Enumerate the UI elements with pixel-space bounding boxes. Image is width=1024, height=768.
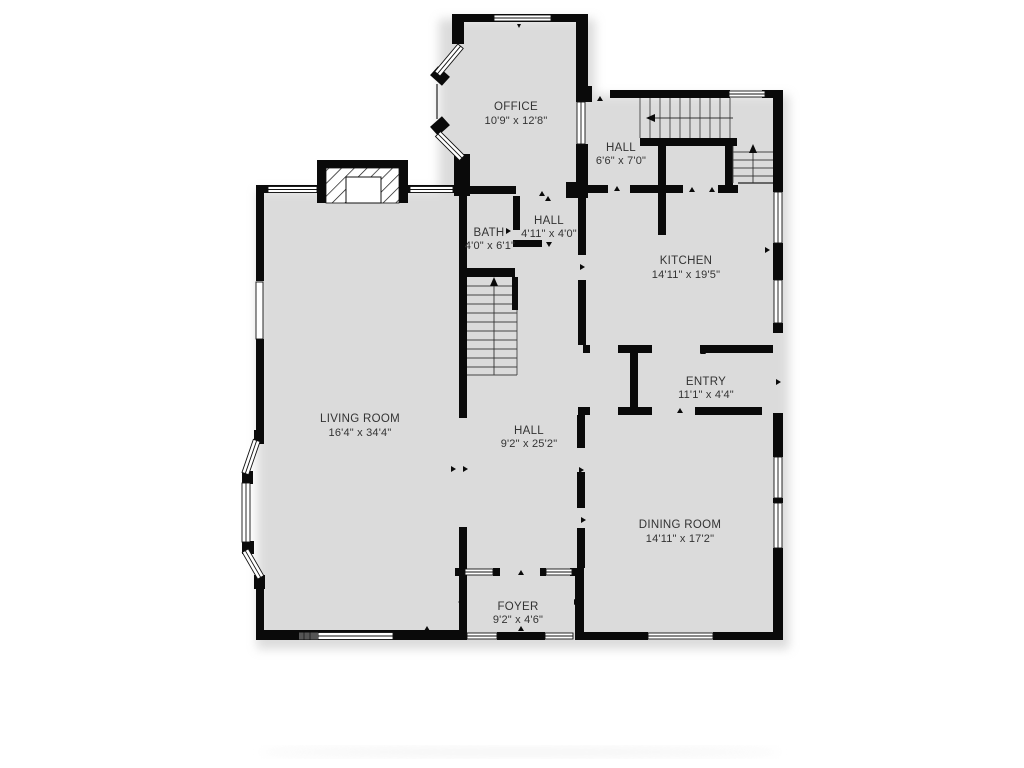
dining-right-window-2 bbox=[774, 503, 782, 548]
firebox bbox=[346, 177, 381, 203]
living-bay-window-mid bbox=[242, 483, 250, 542]
living-left-window bbox=[256, 282, 263, 339]
svg-text:16'4" x 34'4": 16'4" x 34'4" bbox=[329, 427, 392, 439]
svg-text:KITCHEN: KITCHEN bbox=[660, 255, 713, 267]
svg-text:4'0" x 6'1": 4'0" x 6'1" bbox=[465, 240, 515, 252]
floor-plan: OFFICE 10'9" x 12'8" HALL 6'6" x 7'0" BA… bbox=[0, 0, 1024, 768]
svg-text:10'9" x 12'8": 10'9" x 12'8" bbox=[485, 115, 548, 127]
kitchen-right-window-1 bbox=[774, 192, 782, 243]
living-top-window-left bbox=[268, 187, 317, 193]
svg-text:9'2" x 25'2": 9'2" x 25'2" bbox=[501, 438, 558, 450]
svg-text:14'11" x 19'5": 14'11" x 19'5" bbox=[652, 269, 720, 281]
fireplace bbox=[317, 160, 408, 203]
foyer-bottom-window-left bbox=[467, 633, 497, 639]
svg-text:6'6" x 7'0": 6'6" x 7'0" bbox=[596, 155, 646, 167]
svg-text:FOYER: FOYER bbox=[497, 601, 538, 613]
svg-text:HALL: HALL bbox=[534, 215, 564, 227]
foyer-top-window-right bbox=[546, 569, 572, 575]
dining-right-window-1 bbox=[774, 457, 782, 498]
floor-plan-page: OFFICE 10'9" x 12'8" HALL 6'6" x 7'0" BA… bbox=[0, 0, 1024, 768]
top-right-window bbox=[729, 91, 765, 97]
living-bottom-vent bbox=[299, 633, 318, 640]
svg-text:DINING ROOM: DINING ROOM bbox=[639, 519, 722, 531]
office-right-window bbox=[577, 102, 585, 144]
room-label-foyer: FOYER 9'2" x 4'6" bbox=[493, 601, 543, 626]
living-top-window-right bbox=[410, 187, 453, 193]
room-label-entry: ENTRY 11'1" x 4'4" bbox=[678, 376, 734, 401]
svg-text:HALL: HALL bbox=[606, 142, 636, 154]
svg-text:ENTRY: ENTRY bbox=[686, 376, 726, 388]
office-top-window bbox=[494, 15, 551, 21]
building-shadow bbox=[257, 19, 789, 757]
svg-text:HALL: HALL bbox=[514, 425, 544, 437]
svg-text:14'11" x 17'2": 14'11" x 17'2" bbox=[646, 533, 714, 545]
svg-text:BATH: BATH bbox=[473, 227, 504, 239]
svg-text:LIVING ROOM: LIVING ROOM bbox=[320, 413, 400, 425]
kitchen-right-window-2 bbox=[774, 280, 782, 323]
foyer-top-window-left bbox=[465, 569, 493, 575]
living-bottom-window bbox=[318, 633, 393, 640]
svg-text:OFFICE: OFFICE bbox=[494, 101, 538, 113]
svg-text:4'11" x 4'0": 4'11" x 4'0" bbox=[521, 228, 577, 240]
dining-bottom-window bbox=[648, 633, 713, 639]
svg-text:9'2" x 4'6": 9'2" x 4'6" bbox=[493, 614, 543, 626]
svg-text:11'1" x 4'4": 11'1" x 4'4" bbox=[678, 389, 734, 401]
foyer-bottom-window-right bbox=[545, 633, 573, 639]
